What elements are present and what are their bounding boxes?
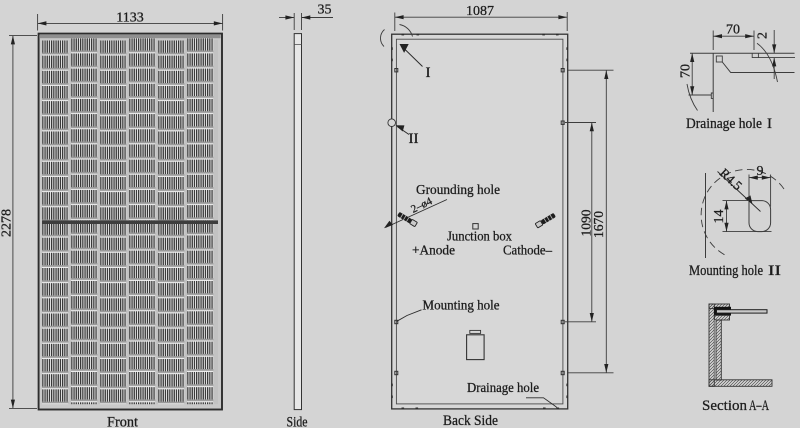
svg-text:Cathode–: Cathode– — [503, 243, 552, 258]
svg-text:I: I — [426, 65, 431, 81]
svg-text:1670: 1670 — [591, 211, 606, 238]
svg-text:2278: 2278 — [0, 209, 15, 237]
svg-text:1087: 1087 — [466, 4, 494, 19]
svg-text:Front: Front — [107, 415, 139, 428]
svg-text:1133: 1133 — [116, 11, 143, 26]
svg-text:Mounting hole: Mounting hole — [423, 298, 500, 313]
svg-text:A–A: A–A — [749, 398, 769, 414]
svg-text:+Anode: +Anode — [412, 243, 455, 258]
svg-text:70: 70 — [679, 64, 694, 78]
svg-text:II: II — [409, 131, 419, 147]
svg-text:II: II — [768, 263, 781, 279]
svg-text:70: 70 — [726, 23, 740, 38]
svg-text:Junction box: Junction box — [447, 229, 512, 244]
svg-text:Mounting hole: Mounting hole — [689, 263, 763, 279]
svg-text:Section: Section — [702, 398, 747, 414]
svg-text:14: 14 — [712, 210, 727, 224]
svg-text:Drainage hole: Drainage hole — [467, 380, 539, 395]
svg-text:2: 2 — [756, 32, 771, 39]
svg-text:I: I — [767, 116, 772, 132]
svg-text:9: 9 — [757, 164, 764, 179]
svg-text:Back Side: Back Side — [443, 413, 498, 428]
svg-text:Drainage hole: Drainage hole — [686, 116, 762, 132]
svg-text:35: 35 — [318, 3, 332, 18]
svg-text:Side: Side — [287, 415, 308, 428]
